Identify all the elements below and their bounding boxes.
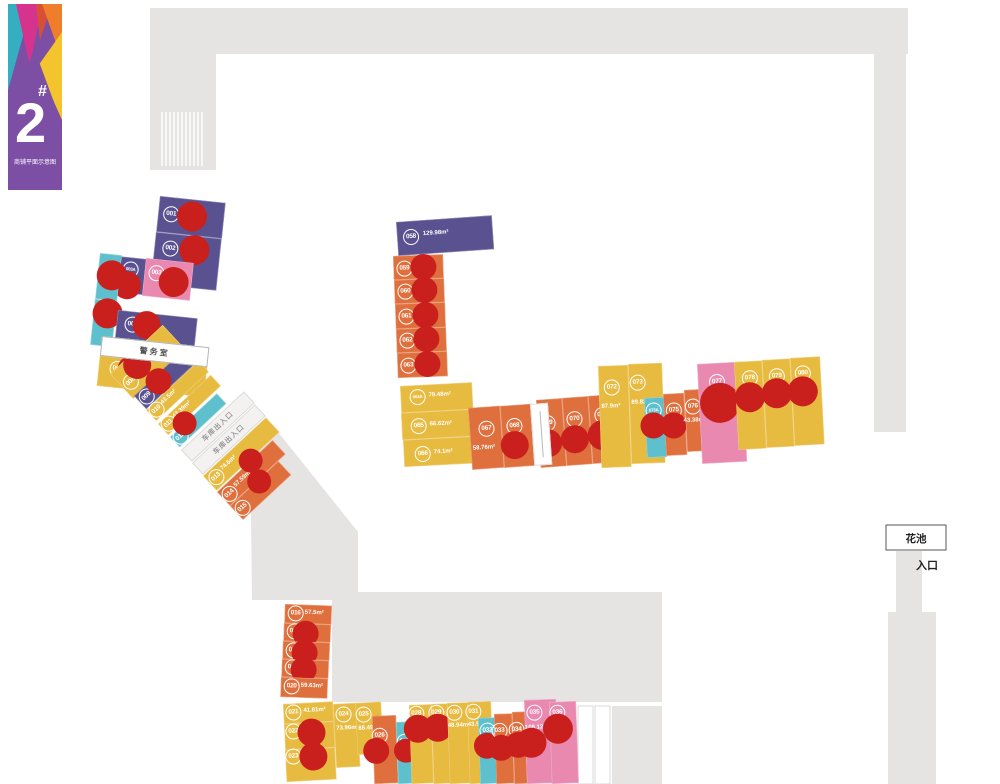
shop-area-label: 87.9m² <box>601 403 620 410</box>
shop-075[interactable]: 075 <box>663 393 687 456</box>
sold-marker <box>500 430 530 460</box>
shop-number-badge: 021 <box>285 704 302 721</box>
sold-marker <box>734 381 766 413</box>
shops-layer: 警务室 车库出入口 车库出入口 001002003A00300400500600… <box>0 0 1000 784</box>
shop-area-label: 41.81m² <box>303 707 326 714</box>
shop-072[interactable]: 07287.9m² <box>598 365 632 468</box>
corridor-gap-line <box>539 411 543 457</box>
sold-marker <box>363 737 390 764</box>
shop-area-label: 57.5m² <box>305 610 324 617</box>
sold-marker <box>157 266 190 299</box>
shop-064A[interactable]: 064A79.48m² <box>400 382 473 413</box>
shop-number-badge: 065 <box>410 418 427 435</box>
shop-number-badge: 035 <box>526 704 543 721</box>
sold-marker <box>176 200 209 233</box>
sold-marker <box>411 277 438 304</box>
shop-036[interactable]: 036 <box>549 701 579 784</box>
shop-062[interactable]: 062 <box>396 327 447 353</box>
shop-065[interactable]: 06566.62m² <box>401 409 474 440</box>
shop-020[interactable]: 02059.63m² <box>280 677 328 699</box>
shop-area-label: 74.6m² <box>220 454 238 471</box>
shop-number-badge: 030 <box>446 704 463 721</box>
shop-number-badge: 002 <box>162 240 180 258</box>
shop-059[interactable]: 059 <box>393 254 444 280</box>
shop-number-badge: 073 <box>629 374 646 391</box>
shop-number-badge: 064A <box>409 389 426 406</box>
shop-area-label: 59.63m² <box>301 683 324 690</box>
shop-number-badge: 072 <box>603 379 620 396</box>
shop-078[interactable]: 078 <box>734 361 767 450</box>
shop-066[interactable]: 06674.1m² <box>403 436 476 467</box>
shop-063[interactable]: 063 <box>397 351 448 378</box>
shop-number-badge: 058 <box>403 228 420 245</box>
shop-058[interactable]: 058129.98m² <box>396 215 494 256</box>
shop-019[interactable]: 019 <box>281 659 329 679</box>
shop-area-label: 79.48m² <box>428 391 451 398</box>
shop-079[interactable]: 079 <box>762 359 795 448</box>
sold-marker <box>660 412 687 439</box>
shop-060[interactable]: 060 <box>394 278 445 304</box>
sold-marker <box>299 742 328 771</box>
shop-003[interactable]: 003 <box>142 258 194 301</box>
shop-number-badge: 066 <box>414 446 431 463</box>
shop-area-label: 129.98m² <box>423 229 449 237</box>
sold-marker <box>542 713 573 744</box>
shop-number-badge: 020 <box>283 678 300 695</box>
shop-061[interactable]: 061 <box>395 302 446 329</box>
shop-080[interactable]: 080 <box>790 356 825 445</box>
shop-area-label: 66.62m² <box>429 420 452 427</box>
shop-number-badge: 016 <box>287 605 304 622</box>
guard-room-label: 警务室 <box>139 345 170 359</box>
shop-area-label: 58.76m² <box>473 444 496 452</box>
floor-plan-canvas: 花池 入口 # 2 商铺平面示意图 警务室 车库出入口 车库出入口 001002… <box>0 0 1000 784</box>
shop-area-label: 74.1m² <box>434 448 453 455</box>
sold-marker <box>414 350 441 377</box>
shop-067[interactable]: 06758.76m² <box>468 406 504 470</box>
sold-marker <box>412 301 439 328</box>
shop-number-badge: 067 <box>478 420 495 437</box>
shop-number-badge: 015 <box>231 497 254 520</box>
sold-marker <box>787 376 819 408</box>
shop-number-badge: 024 <box>335 706 352 723</box>
shop-023[interactable]: 023 <box>285 747 337 782</box>
shop-number-badge: 025 <box>355 706 372 723</box>
sold-marker <box>413 326 440 353</box>
